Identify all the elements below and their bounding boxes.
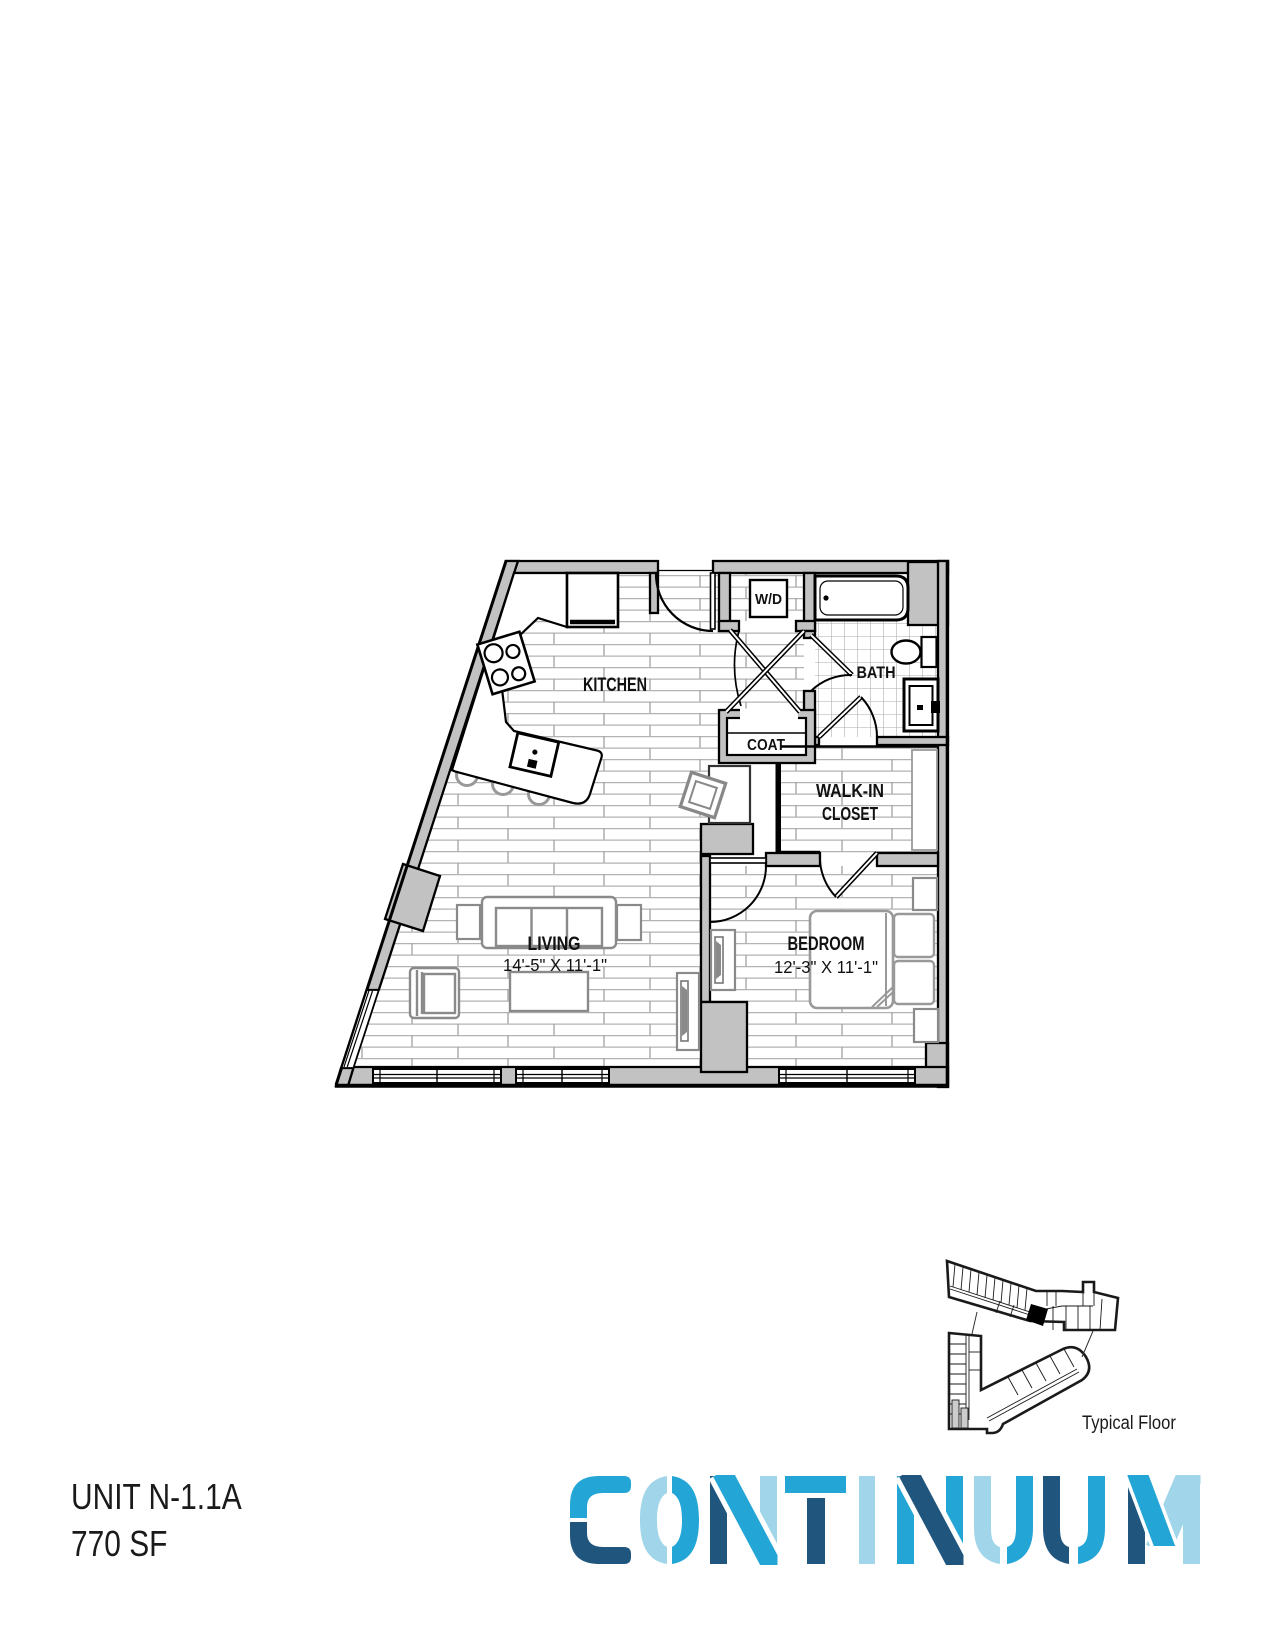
svg-text:UNIT N-1.1A: UNIT N-1.1A bbox=[71, 1477, 242, 1517]
svg-text:COAT: COAT bbox=[747, 737, 785, 754]
svg-text:770 SF: 770 SF bbox=[71, 1524, 167, 1564]
svg-text:KITCHEN: KITCHEN bbox=[583, 675, 647, 696]
svg-text:BATH: BATH bbox=[857, 663, 896, 682]
svg-text:CLOSET: CLOSET bbox=[822, 803, 879, 824]
svg-text:BEDROOM: BEDROOM bbox=[788, 934, 865, 955]
svg-text:WALK-IN: WALK-IN bbox=[816, 780, 884, 801]
svg-text:Typical Floor: Typical Floor bbox=[1082, 1412, 1176, 1434]
svg-text:LIVING: LIVING bbox=[528, 934, 581, 955]
svg-text:W/D: W/D bbox=[755, 592, 782, 608]
svg-text:12'-3" X 11'-1": 12'-3" X 11'-1" bbox=[774, 957, 878, 977]
svg-text:14'-5" X 11'-1": 14'-5" X 11'-1" bbox=[503, 955, 607, 975]
